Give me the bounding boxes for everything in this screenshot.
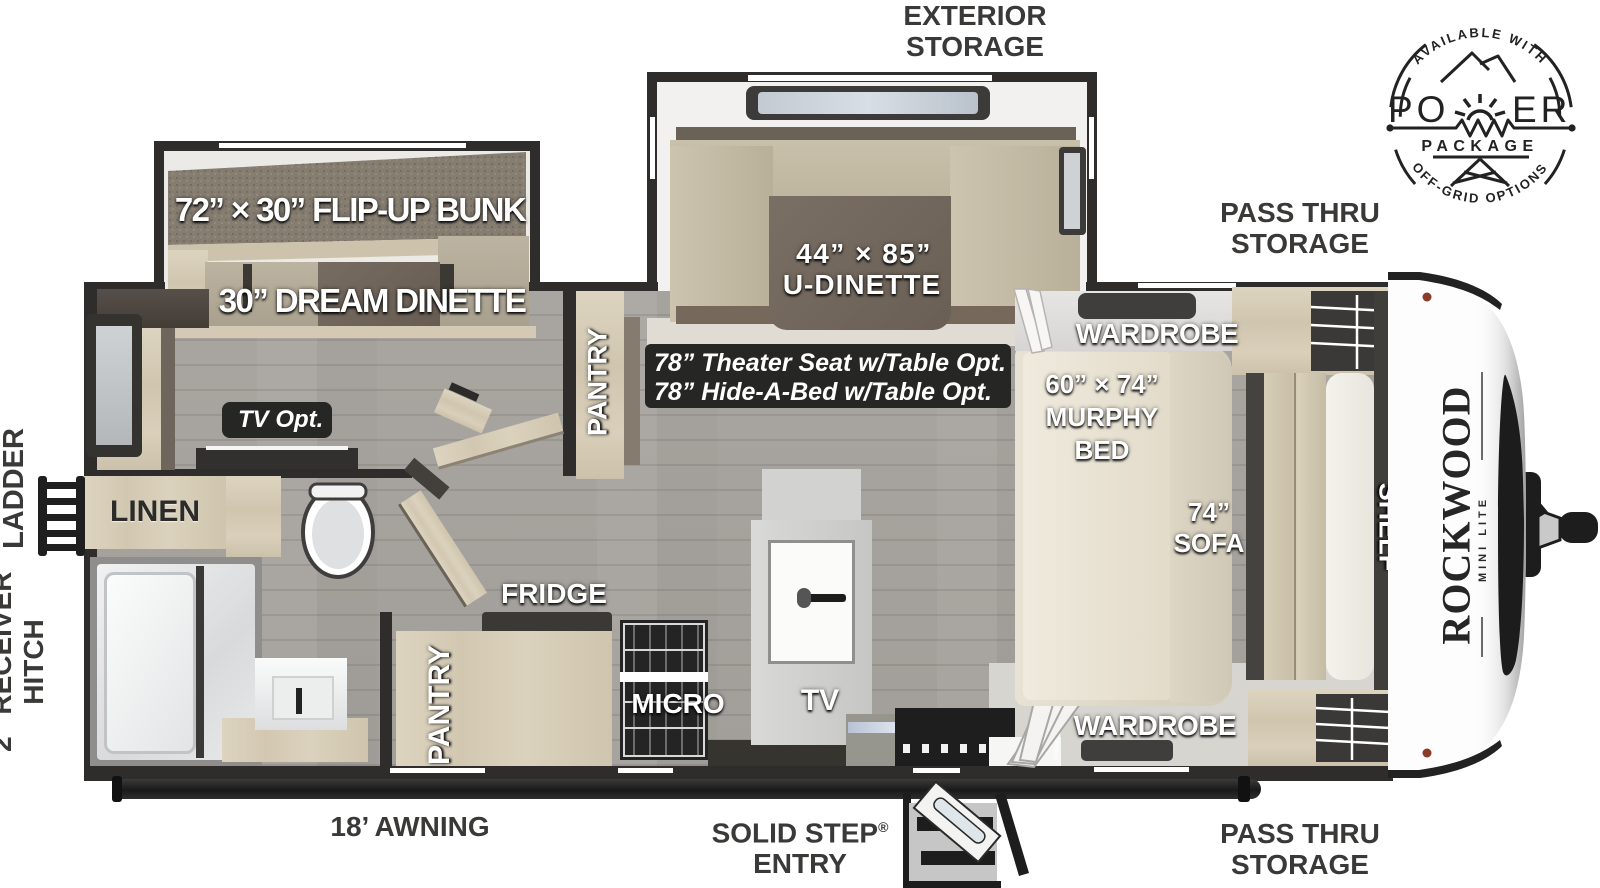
svg-text:PACKAGE: PACKAGE: [1421, 138, 1538, 155]
svg-text:PO: PO: [1388, 89, 1449, 130]
svg-text:OFF-GRID OPTIONS: OFF-GRID OPTIONS: [1409, 160, 1551, 206]
svg-text:ER: ER: [1512, 89, 1571, 130]
